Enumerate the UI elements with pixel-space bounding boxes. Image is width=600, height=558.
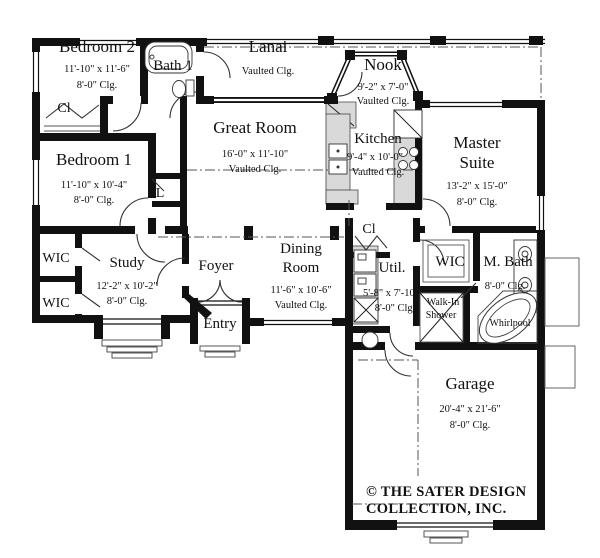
bedroom1-label: Bedroom 1 [56,150,132,169]
util-ceiling: 8'-0" Clg. [375,303,416,314]
linen-label: L [156,186,165,201]
entry-label: Entry [203,316,237,332]
kitchen-ceiling: Vaulted Clg. [352,167,405,178]
bedroom1-ceiling: 8'-0" Clg. [74,195,115,206]
lanai-label: Lanai [249,37,288,56]
garage-label: Garage [445,374,494,393]
floor-plan-page: Bedroom 2 11'-10" x 11'-6" 8'-0" Clg. Ba… [0,0,600,558]
great-room-ceiling: Vaulted Clg. [229,164,282,175]
nook-dims: 9'-2" x 7'-0" [358,82,409,93]
bedroom2-dims: 11'-10" x 11'-6" [64,64,130,75]
exterior-pad [545,346,575,388]
master-suite-ceiling: 8'-0" Clg. [457,197,498,208]
copyright-line-1: © THE SATER DESIGN [366,484,527,500]
whirlpool-label: Whirlpool [489,318,530,329]
dining-room-dims: 11'-6" x 10'-6" [271,285,332,296]
master-suite-label-1: Master [453,133,501,152]
garage-ceiling: 8'-0" Clg. [450,420,491,431]
garage-door-pad [424,531,468,543]
study-dims: 12'-2" x 10'-2" [96,281,157,292]
steps-icon [200,346,240,357]
dining-room-ceiling: Vaulted Clg. [275,300,328,311]
bedroom1-dims: 11'-10" x 10'-4" [61,180,127,191]
master-suite-label-2: Suite [460,153,495,172]
wic2-label: WIC [42,296,69,311]
master-suite-dims: 13'-2" x 15'-0" [446,181,507,192]
study-label: Study [109,255,145,271]
ceiling-lines [158,170,452,504]
kitchen-label: Kitchen [354,131,402,147]
lanai-ceiling: Vaulted Clg. [242,66,295,77]
m-bath-label: M. Bath [483,254,533,270]
wic1-label: WIC [42,251,69,266]
bath1-label: Bath 1 [153,58,193,74]
nook-ceiling: Vaulted Clg. [357,96,410,107]
wic-master-label: WIC [435,254,464,270]
dining-room-label-2: Room [283,260,320,276]
closet-hall-label: Cl [362,222,375,237]
garage-dims: 20'-4" x 21'-6" [439,404,500,415]
water-heater-icon [362,332,378,348]
bedroom2-label: Bedroom 2 [59,37,135,56]
great-room-label: Great Room [213,118,297,137]
util-dims: 5'-8" x 7'-10" [363,288,419,299]
util-label: Util. [378,260,405,276]
great-room-dims: 16'-0" x 11'-10" [222,149,288,160]
kitchen-dims: 9'-4" x 10'-0" [347,152,403,163]
bifold-door-icon [44,104,100,131]
floor-plan-drawing: Bedroom 2 11'-10" x 11'-6" 8'-0" Clg. Ba… [0,0,600,558]
walk-in-shower-label-2: Shower [426,310,457,321]
nook-label: Nook [364,55,402,74]
exterior-pad [545,258,579,326]
dining-room-label-1: Dining [280,241,322,257]
m-bath-ceiling: 8'-0" Clg. [485,281,526,292]
copyright-line-2: COLLECTION, INC. [366,501,507,517]
walk-in-shower-label-1: Walk-In [427,297,460,308]
toilet-icon [173,80,195,98]
bedroom2-ceiling: 8'-0" Clg. [77,80,118,91]
study-ceiling: 8'-0" Clg. [107,296,148,307]
closet-bedroom2-label: Cl [57,101,70,116]
steps-icon [102,340,162,358]
foyer-label: Foyer [199,258,234,274]
